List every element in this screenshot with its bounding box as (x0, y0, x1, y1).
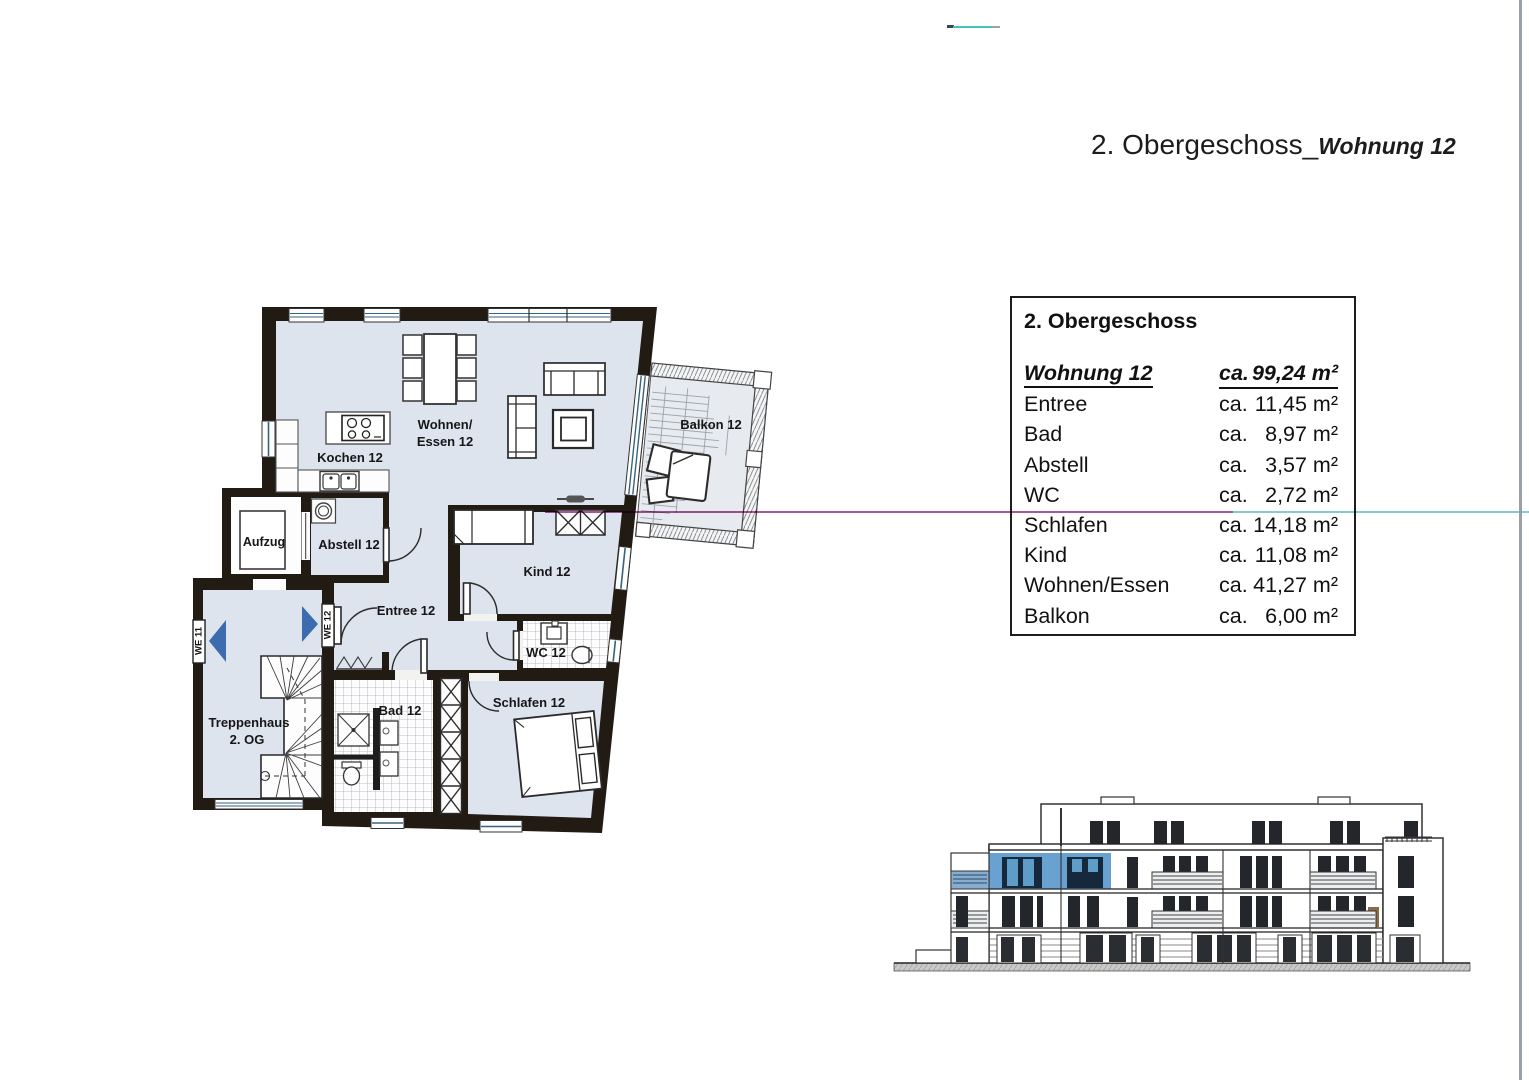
svg-text:Schlafen 12: Schlafen 12 (493, 695, 565, 710)
svg-text:Kochen 12: Kochen 12 (317, 450, 383, 465)
svg-text:WE 12: WE 12 (323, 611, 334, 640)
svg-text:Kind 12: Kind 12 (524, 564, 571, 579)
svg-text:2. OG: 2. OG (230, 732, 265, 747)
svg-text:Aufzug: Aufzug (243, 535, 285, 549)
svg-text:Balkon 12: Balkon 12 (680, 417, 741, 432)
svg-text:WC 12: WC 12 (526, 645, 566, 660)
svg-text:Treppenhaus: Treppenhaus (209, 715, 290, 730)
svg-text:Wohnen/: Wohnen/ (418, 417, 473, 432)
svg-text:Abstell 12: Abstell 12 (318, 537, 379, 552)
svg-text:Essen 12: Essen 12 (417, 434, 473, 449)
svg-text:WE 11: WE 11 (194, 626, 205, 655)
svg-text:Bad 12: Bad 12 (379, 703, 422, 718)
svg-text:Entree 12: Entree 12 (377, 603, 436, 618)
